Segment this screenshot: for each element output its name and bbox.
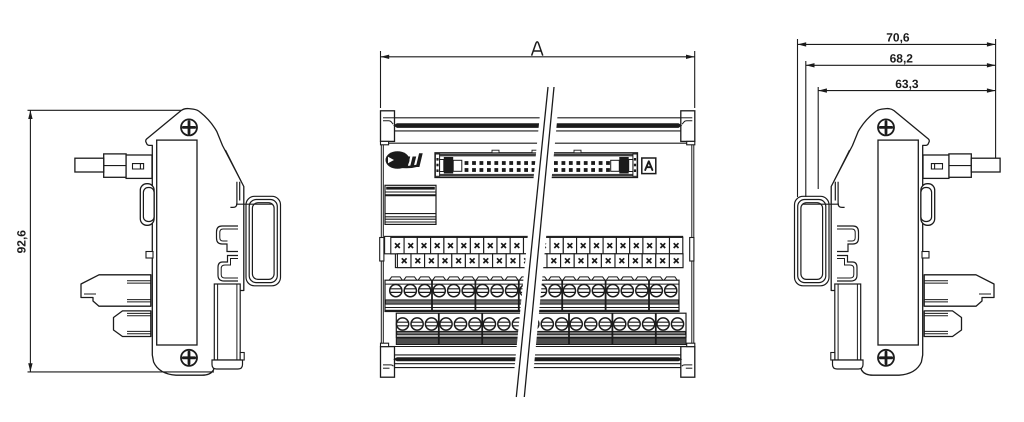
svg-text:63,3: 63,3 [895, 77, 919, 91]
svg-text:70,6: 70,6 [886, 31, 910, 45]
svg-text:92,6: 92,6 [15, 230, 29, 254]
svg-text:68,2: 68,2 [890, 52, 914, 66]
